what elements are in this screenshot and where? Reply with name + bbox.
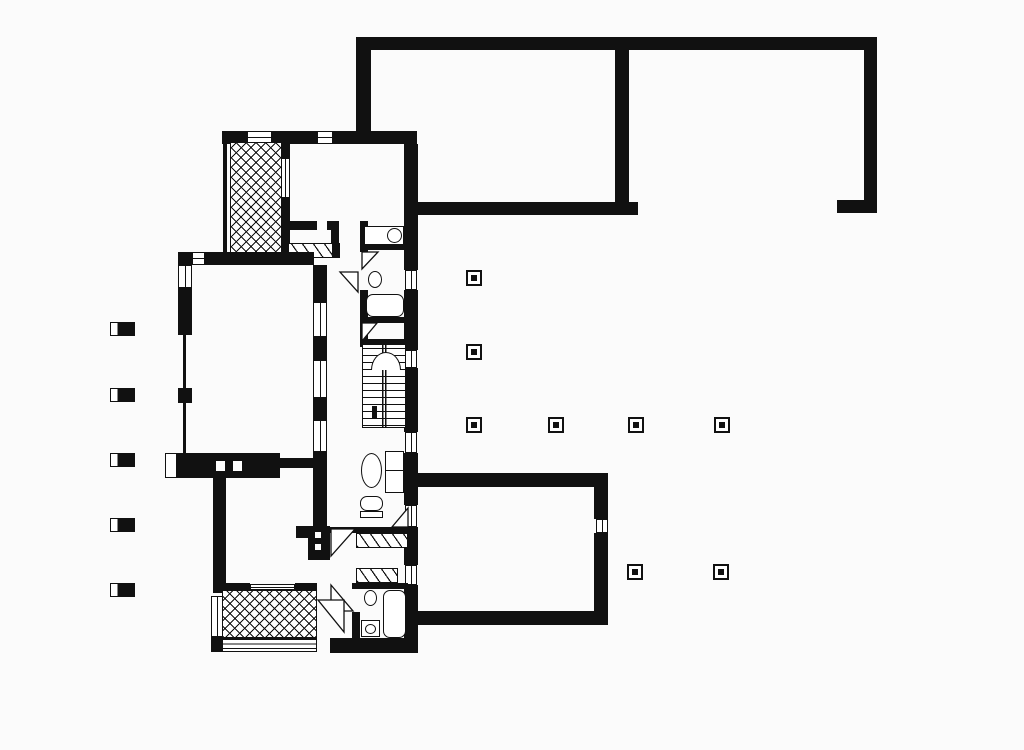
pier-socket-1 xyxy=(315,532,321,538)
living-east-wall-4 xyxy=(313,452,327,528)
fireplace-link-wall xyxy=(280,458,313,468)
house-top-wall-right xyxy=(333,131,417,144)
armchair-seat xyxy=(360,496,383,511)
floor-plan xyxy=(0,0,1024,750)
pergola-column-west-5 xyxy=(110,583,135,597)
bedroom-south-wall-b xyxy=(327,221,339,230)
wc2-bowl xyxy=(365,624,376,634)
west-window-1 xyxy=(178,265,192,288)
courtyard-right-wall-foot xyxy=(837,200,877,213)
upper-terrace-east-window xyxy=(281,158,290,198)
pergola-column-west-2 xyxy=(110,388,135,402)
bath2-sink xyxy=(364,590,377,606)
lower-terrace-crosshatch xyxy=(222,590,317,638)
pergola-column-west-3 xyxy=(110,453,135,467)
courtyard-divider-wall xyxy=(615,50,629,203)
bath1-sink xyxy=(368,271,382,288)
pier-socket-2 xyxy=(315,544,321,550)
free-column-8 xyxy=(713,564,729,580)
wc1-bowl xyxy=(387,228,402,243)
bath2-west-wall xyxy=(352,612,360,638)
free-column-1 xyxy=(466,270,482,286)
wc1-door xyxy=(362,252,378,269)
bath2-north-wall xyxy=(352,583,408,589)
se-room-east-window xyxy=(596,519,608,533)
living-east-window-2 xyxy=(313,360,327,398)
stairs-newel xyxy=(372,406,377,419)
free-column-3 xyxy=(466,417,482,433)
upper-terrace-west-glazing xyxy=(223,144,227,256)
closet-2-hatch xyxy=(356,568,398,583)
bath1-tub xyxy=(366,294,404,317)
living-north-wall xyxy=(205,252,314,265)
east-window-2 xyxy=(405,350,417,368)
se-room-north-wall xyxy=(412,473,608,487)
se-room-east-wall-b xyxy=(594,533,608,611)
southwest-room-west-wall xyxy=(213,478,226,593)
sw-room-door xyxy=(331,529,355,556)
pergola-column-west-1 xyxy=(110,322,135,336)
entry-door xyxy=(392,508,408,527)
free-column-5 xyxy=(628,417,644,433)
window-bedroom-north xyxy=(317,131,333,144)
east-window-3 xyxy=(405,432,417,453)
bath1-door xyxy=(340,272,358,292)
coffee-table xyxy=(361,453,382,488)
fireplace-flue-1 xyxy=(216,461,225,471)
east-wall-2 xyxy=(404,290,418,350)
upper-terrace-east-wall-a xyxy=(281,144,290,158)
courtyard-left-wall xyxy=(356,44,371,143)
free-column-4 xyxy=(548,417,564,433)
house-south-wall xyxy=(330,638,418,653)
bath2-tub xyxy=(383,590,406,638)
bedroom-south-wall-a xyxy=(283,221,317,230)
fireplace-mass xyxy=(177,453,280,478)
free-column-2 xyxy=(466,344,482,360)
fireplace-cap xyxy=(165,453,177,478)
courtyard-top-wall xyxy=(356,37,877,50)
courtyard-bottom-wall xyxy=(412,202,638,215)
wc1-divider-wall xyxy=(368,245,404,250)
living-north-window xyxy=(192,252,205,265)
lower-terrace-steps xyxy=(222,638,317,652)
west-wall-1 xyxy=(178,288,192,335)
west-pier xyxy=(178,388,192,403)
west-glazing-2 xyxy=(183,403,186,453)
sofa xyxy=(385,451,404,493)
east-wall-1 xyxy=(404,144,418,270)
lower-terrace-north-wall-b xyxy=(295,583,317,590)
west-glazing-1 xyxy=(183,335,186,388)
living-east-wall-3 xyxy=(313,398,327,420)
living-east-window-1 xyxy=(313,302,327,337)
closet-1-hatch xyxy=(356,533,408,548)
se-room-east-wall-a xyxy=(594,487,608,519)
living-east-wall-1 xyxy=(313,265,327,302)
free-column-7 xyxy=(627,564,643,580)
living-north-wall-corner xyxy=(178,252,192,265)
se-room-south-wall xyxy=(412,611,608,625)
upper-terrace-crosshatch xyxy=(230,142,282,258)
courtyard-right-wall xyxy=(864,44,877,213)
closet-side-wall xyxy=(333,243,340,258)
lower-terrace-door xyxy=(318,600,344,632)
lower-terrace-west-corner xyxy=(211,637,223,652)
lower-terrace-north-wall-a xyxy=(220,583,250,590)
east-window-5 xyxy=(405,565,417,585)
free-column-6 xyxy=(714,417,730,433)
fireplace-flue-2 xyxy=(233,461,242,471)
living-east-wall-2 xyxy=(313,337,327,360)
lower-terrace-west-window xyxy=(211,596,223,637)
living-east-window-3 xyxy=(313,420,327,452)
east-wall-3 xyxy=(404,368,418,432)
armchair-base xyxy=(360,511,383,518)
east-window-1 xyxy=(405,270,417,290)
pergola-column-west-4 xyxy=(110,518,135,532)
